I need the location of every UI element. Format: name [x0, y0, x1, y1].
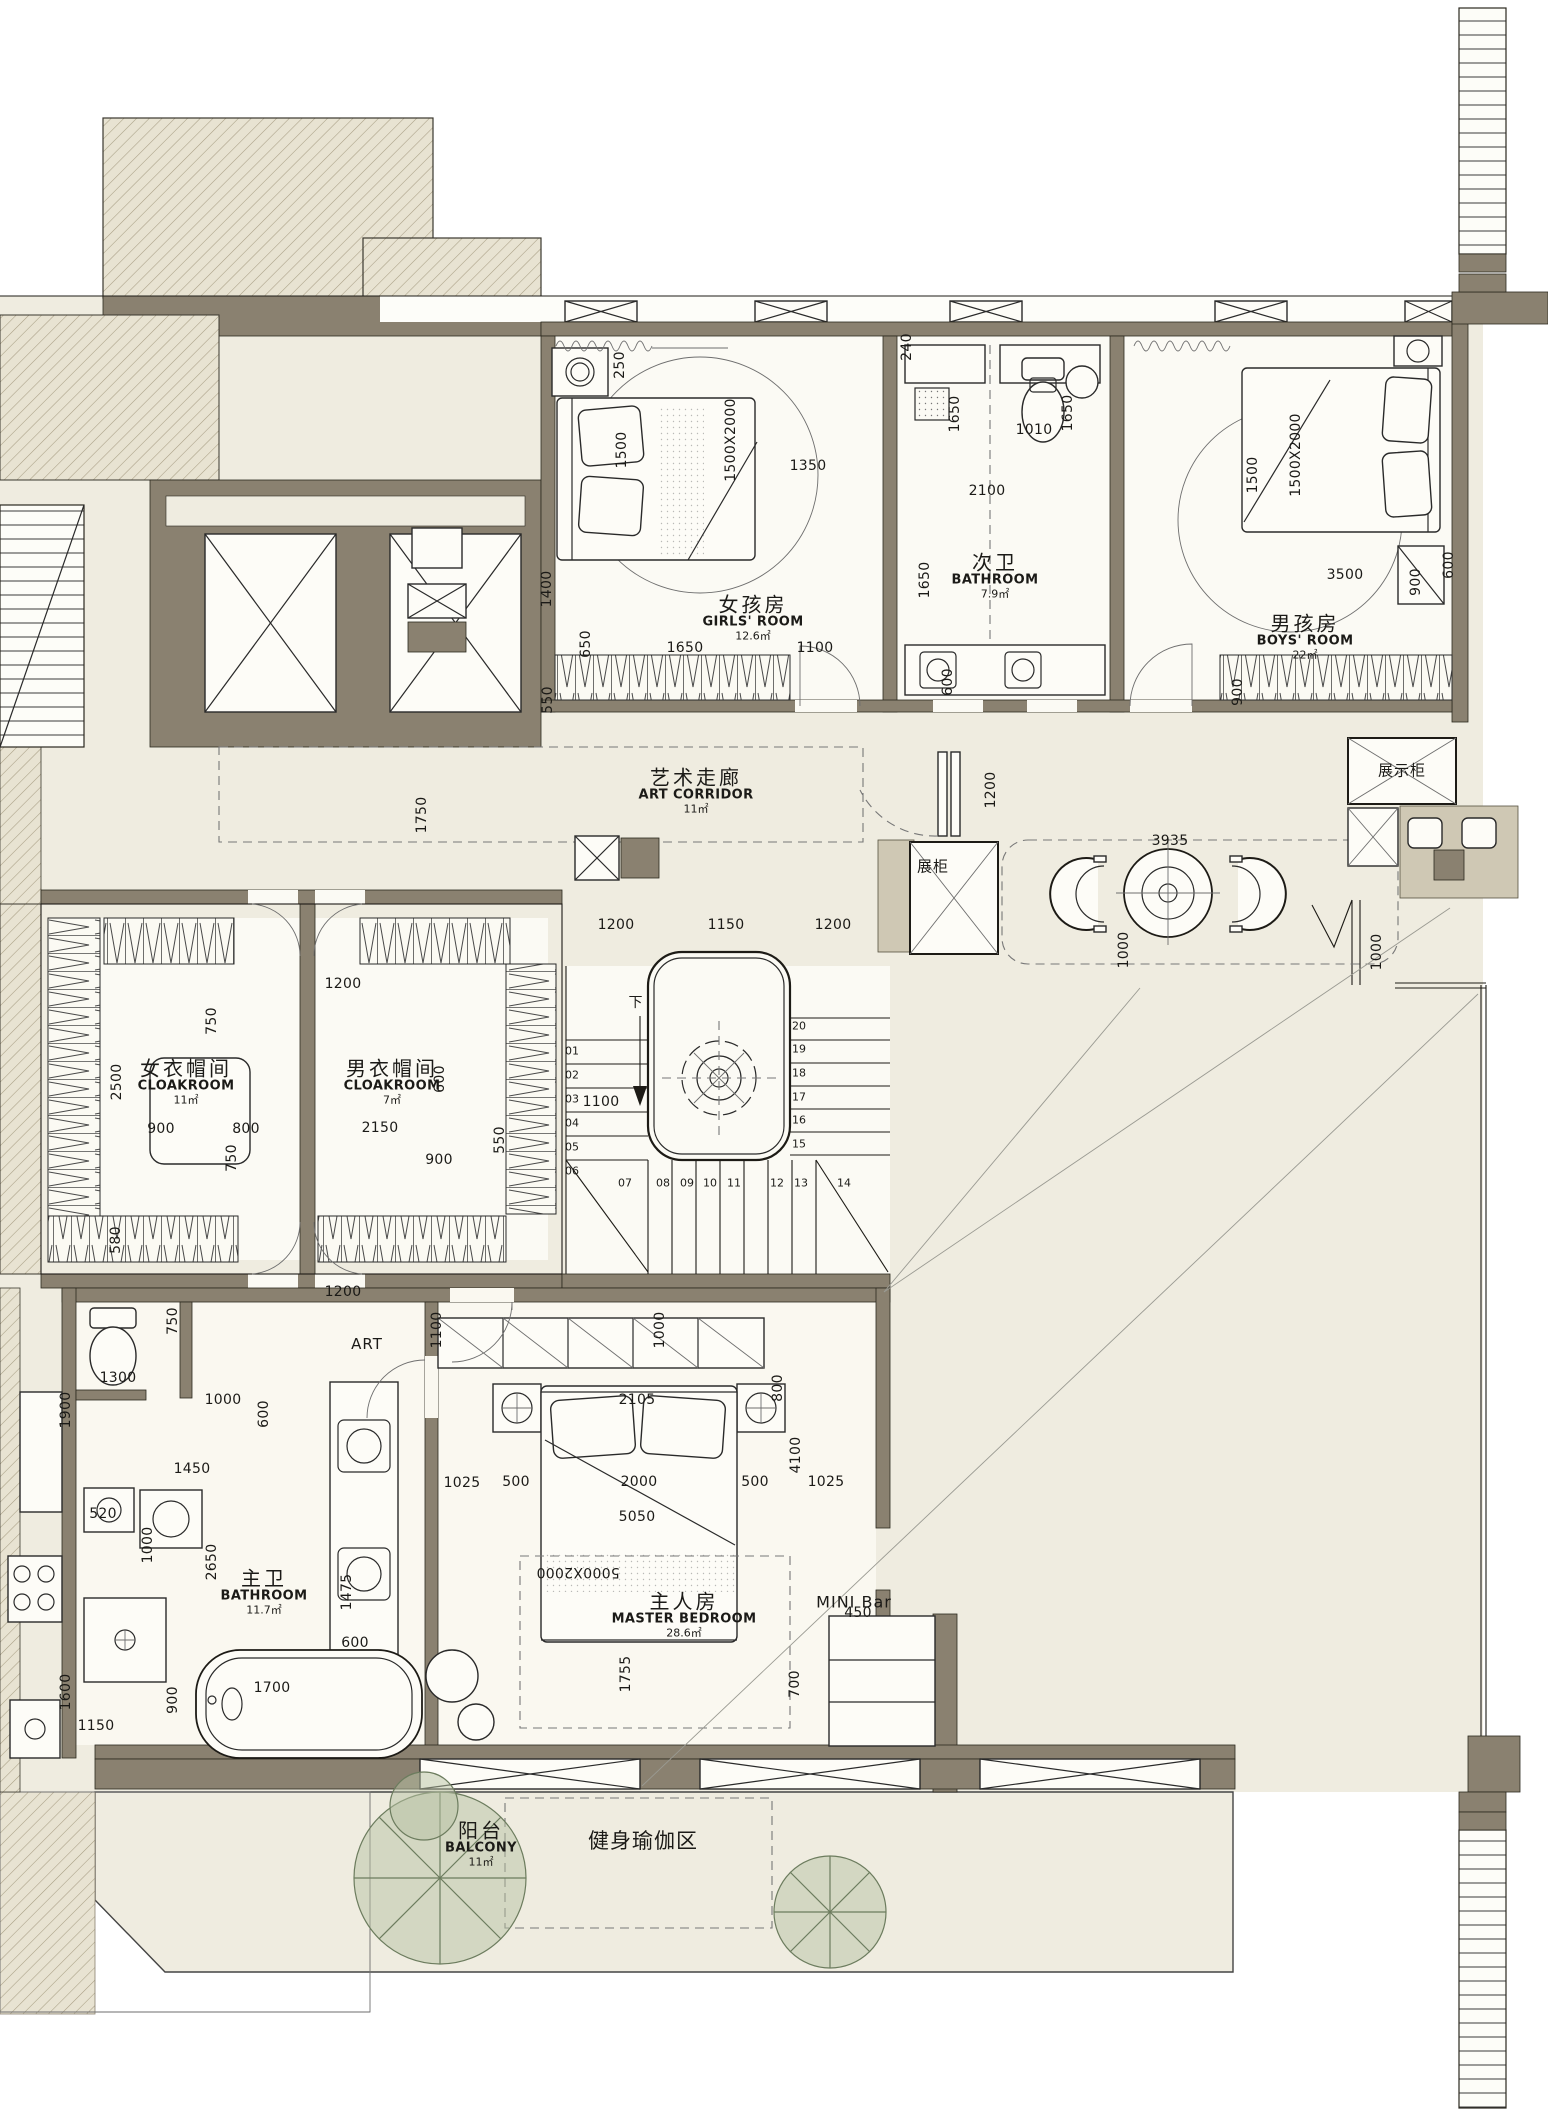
art-wardrobe-strip: [438, 1318, 764, 1368]
toilet: [1022, 358, 1064, 442]
boys-bed: [1242, 368, 1440, 532]
toilet-master: [90, 1308, 136, 1385]
round-basin: [1066, 366, 1098, 398]
vanity-master: [330, 1382, 398, 1688]
fire-stair: [0, 505, 84, 747]
girls-bed: [557, 398, 757, 560]
pouf: [458, 1704, 494, 1740]
washer: [140, 1490, 202, 1548]
shower-drain: [915, 388, 949, 420]
stove: [8, 1556, 62, 1622]
lounge-chair: [426, 1650, 478, 1702]
display-case: [878, 840, 998, 954]
plan-linework: [0, 0, 1548, 2115]
washing-machine: [552, 348, 608, 396]
master-bed: [541, 1386, 737, 1642]
bathtub: [196, 1650, 422, 1758]
boys-wardrobe: [1220, 655, 1452, 700]
vanity-double: [905, 645, 1105, 695]
tree-small: [774, 1856, 886, 1968]
island-dresser: [150, 1058, 250, 1164]
mini-bar: [829, 1616, 935, 1746]
girls-wardrobe: [555, 655, 790, 700]
elevator-1: [205, 534, 336, 712]
floor-plan-page: 女孩房 GIRLS' ROOM 12.6㎡ 次卫 BATHROOM 7.9㎡ 男…: [0, 0, 1548, 2115]
shower: [84, 1598, 166, 1682]
